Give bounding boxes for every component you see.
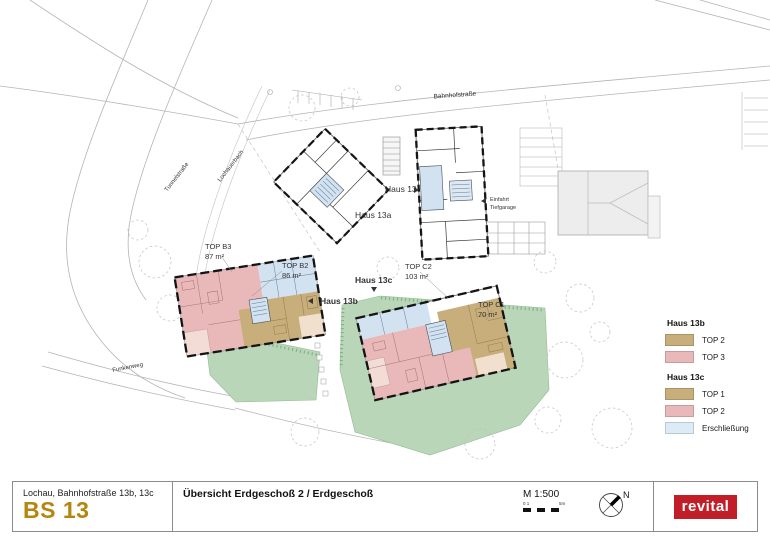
project-code: BS 13 bbox=[23, 500, 162, 521]
unit-area-top-c1: 70 m² bbox=[478, 310, 498, 319]
building-label-haus13: Haus 13 bbox=[385, 184, 417, 194]
legend-swatch-tan bbox=[665, 388, 694, 400]
legend-label: TOP 2 bbox=[702, 336, 725, 345]
legend-row: TOP 2 bbox=[665, 405, 767, 417]
unit-label-top-c2: TOP C2 bbox=[405, 262, 432, 271]
title-block-logo-cell: revital bbox=[653, 482, 757, 531]
scale-label: M 1:500 bbox=[523, 489, 569, 500]
neighbor-building bbox=[558, 171, 660, 238]
scale-bar: 0 1 5m bbox=[523, 500, 569, 514]
legend-swatch-tan bbox=[665, 334, 694, 346]
parking-top bbox=[268, 86, 401, 111]
garage-grid bbox=[483, 222, 545, 254]
scale-block: M 1:500 0 1 5m bbox=[523, 489, 569, 519]
unit-label-top-c1: TOP C1 bbox=[478, 300, 505, 309]
building-label-haus13b: Haus 13b bbox=[320, 296, 358, 306]
legend-label: Erschließung bbox=[702, 424, 749, 433]
legend-label: TOP 2 bbox=[702, 407, 725, 416]
haus13c-pointer-icon bbox=[371, 287, 377, 292]
compass-icon: N bbox=[597, 488, 633, 520]
legend-swatch-pink bbox=[665, 405, 694, 417]
unit-label-top-b2: TOP B2 bbox=[282, 261, 308, 270]
annotation-einfahrt-line2: Tiefgarage bbox=[490, 205, 516, 211]
legend-row: TOP 2 bbox=[665, 334, 767, 346]
unit-area-top-b2: 86 m² bbox=[282, 271, 302, 280]
scale-end-label: 5m bbox=[559, 501, 566, 506]
street-label-funkenweg: Funkenweg bbox=[112, 362, 144, 374]
legend-row: TOP 3 bbox=[665, 351, 767, 363]
revital-logo: revital bbox=[674, 495, 738, 519]
legend: Haus 13b TOP 2 TOP 3 Haus 13c TOP 1 TOP … bbox=[665, 318, 767, 443]
title-block-sheet-cell: Übersicht Erdgeschoß 2 / Erdgeschoß M 1:… bbox=[173, 482, 653, 531]
north-arrow: N bbox=[597, 488, 633, 525]
title-block: Lochau, Bahnhofstraße 13b, 13c BS 13 Übe… bbox=[12, 481, 758, 532]
unit-area-top-c2: 103 m² bbox=[405, 272, 429, 281]
sheet-title: Übersicht Erdgeschoß 2 / Erdgeschoß bbox=[183, 488, 373, 500]
street-label-lochauerbach: Lochauerbach bbox=[217, 150, 245, 184]
legend-group-haus13c: Haus 13c TOP 1 TOP 2 Erschließung bbox=[665, 372, 767, 434]
street-label-tunnelstrasse: Tunnelstraße bbox=[164, 161, 191, 193]
building-label-haus13c: Haus 13c bbox=[355, 275, 393, 285]
legend-swatch-pink bbox=[665, 351, 694, 363]
unit-label-top-b3: TOP B3 bbox=[205, 242, 231, 251]
building-label-haus13a: Haus 13a bbox=[355, 210, 392, 220]
ramp-stairs bbox=[383, 137, 400, 175]
legend-row: Erschließung bbox=[665, 422, 767, 434]
legend-label: TOP 3 bbox=[702, 353, 725, 362]
unit-area-top-b3: 87 m² bbox=[205, 252, 225, 261]
title-block-project-cell: Lochau, Bahnhofstraße 13b, 13c BS 13 bbox=[13, 482, 173, 531]
drawing-sheet: Bahnhofstraße Tunnelstraße Lochauerbach … bbox=[0, 0, 770, 545]
annotation-einfahrt-line1: Einfahrt bbox=[490, 197, 509, 203]
legend-row: TOP 1 bbox=[665, 388, 767, 400]
legend-label: TOP 1 bbox=[702, 390, 725, 399]
legend-swatch-blue bbox=[665, 422, 694, 434]
legend-group-haus13b: Haus 13b TOP 2 TOP 3 bbox=[665, 318, 767, 363]
north-label: N bbox=[623, 490, 630, 500]
building-haus-13 bbox=[416, 126, 489, 259]
scale-start-label: 0 1 bbox=[523, 501, 530, 506]
building-haus-13a bbox=[274, 129, 389, 243]
legend-group-title: Haus 13b bbox=[667, 318, 767, 328]
street-label-bahnhofstrasse: Bahnhofstraße bbox=[433, 90, 476, 100]
legend-group-title: Haus 13c bbox=[667, 372, 767, 382]
site-plan: Bahnhofstraße Tunnelstraße Lochauerbach … bbox=[0, 0, 770, 478]
